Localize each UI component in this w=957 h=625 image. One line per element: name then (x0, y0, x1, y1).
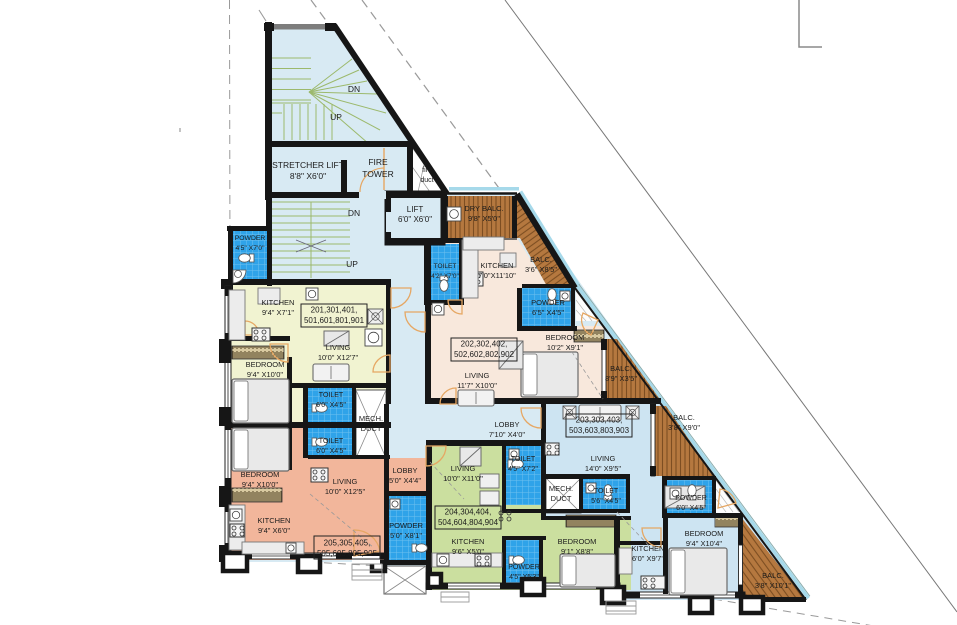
svg-text:505,605,805,905: 505,605,805,905 (317, 549, 378, 558)
svg-text:KITCHEN: KITCHEN (481, 261, 514, 270)
svg-text:POWDER: POWDER (389, 521, 423, 530)
svg-text:DUCT: DUCT (551, 494, 572, 503)
svg-text:9'6" X5'0": 9'6" X5'0" (452, 547, 484, 556)
svg-text:UP: UP (330, 112, 342, 122)
svg-text:BALC.: BALC. (673, 413, 695, 422)
svg-text:BEDROOM: BEDROOM (685, 529, 724, 538)
svg-text:4'5" X7'2": 4'5" X7'2" (508, 466, 538, 473)
svg-text:LOBBY: LOBBY (392, 466, 417, 475)
svg-text:9'1" X8'8": 9'1" X8'8" (561, 547, 593, 556)
svg-text:11'7" X10'0": 11'7" X10'0" (457, 381, 497, 390)
svg-text:9'4" X10'0": 9'4" X10'0" (247, 370, 283, 379)
svg-text:UP: UP (346, 259, 358, 269)
svg-text:6'0" X4'5": 6'0" X4'5" (676, 505, 706, 512)
svg-text:POWDER: POWDER (235, 235, 266, 242)
svg-text:10'2" X9'1": 10'2" X9'1" (547, 343, 583, 352)
svg-text:6'5" X4'5": 6'5" X4'5" (532, 308, 564, 317)
svg-text:BEDROOM: BEDROOM (246, 360, 285, 369)
svg-text:fire: fire (422, 167, 432, 174)
svg-text:205,305,405,: 205,305,405, (324, 539, 371, 548)
svg-text:9'4" X6'0": 9'4" X6'0" (258, 526, 290, 535)
svg-text:502,602,802,902: 502,602,802,902 (454, 350, 515, 359)
svg-text:DUCT: DUCT (361, 424, 382, 433)
svg-text:4'5" X5'3": 4'5" X5'3" (509, 574, 539, 581)
svg-text:203,303,403,: 203,303,403, (576, 416, 623, 425)
svg-text:10'0" X11'0": 10'0" X11'0" (443, 474, 483, 483)
svg-text:BEDROOM: BEDROOM (558, 537, 597, 546)
svg-text:201,301,401,: 201,301,401, (311, 306, 358, 315)
svg-text:6'0" X4'5": 6'0" X4'5" (316, 448, 346, 455)
svg-text:9'8" X5'0": 9'8" X5'0" (468, 214, 500, 223)
svg-text:MECH.: MECH. (549, 484, 573, 493)
svg-text:3'8" X10'1": 3'8" X10'1" (755, 581, 791, 590)
svg-text:4'5" X7'0": 4'5" X7'0" (236, 245, 266, 252)
svg-text:LIVING: LIVING (333, 477, 358, 486)
svg-text:TOILET: TOILET (594, 488, 619, 495)
svg-text:8'8" X6'0": 8'8" X6'0" (290, 171, 326, 181)
svg-text:7'0"X11'10": 7'0"X11'10" (478, 271, 516, 280)
svg-text:3'6" X8'5": 3'6" X8'5" (525, 265, 557, 274)
svg-text:TOILET: TOILET (319, 438, 344, 445)
svg-text:BALC.: BALC. (762, 571, 784, 580)
svg-text:9'4" X7'1": 9'4" X7'1" (262, 308, 294, 317)
svg-text:LIFT: LIFT (407, 205, 424, 214)
svg-text:503,603,803,903: 503,603,803,903 (569, 426, 630, 435)
svg-text:MECH.: MECH. (359, 414, 383, 423)
svg-text:TOILET: TOILET (319, 392, 344, 399)
svg-text:LIVING: LIVING (465, 371, 490, 380)
svg-text:STRETCHER LIFT: STRETCHER LIFT (272, 160, 344, 170)
svg-text:BALC.: BALC. (610, 364, 632, 373)
svg-text:5'6" X4'5": 5'6" X4'5" (591, 498, 621, 505)
svg-text:KITCHEN: KITCHEN (452, 537, 485, 546)
svg-text:9'4" X10'0": 9'4" X10'0" (242, 480, 278, 489)
svg-text:BEDROOM: BEDROOM (241, 470, 280, 479)
svg-text:TOILET: TOILET (511, 456, 536, 463)
svg-text:KITCHEN: KITCHEN (632, 544, 665, 553)
svg-text:FIRE: FIRE (368, 157, 388, 167)
svg-text:14'0" X9'5": 14'0" X9'5" (585, 464, 621, 473)
svg-text:LIVING: LIVING (591, 454, 616, 463)
svg-text:4'2" X7'0": 4'2" X7'0" (431, 273, 459, 280)
svg-text:BALC.: BALC. (530, 255, 552, 264)
svg-text:8'9" X3'5": 8'9" X3'5" (605, 374, 637, 383)
svg-text:9'4" X10'4": 9'4" X10'4" (686, 539, 722, 548)
svg-text:KITCHEN: KITCHEN (258, 516, 291, 525)
svg-text:7'10" X4'0": 7'10" X4'0" (489, 430, 525, 439)
svg-text:POWDER: POWDER (531, 298, 565, 307)
svg-text:10'0" X12'7": 10'0" X12'7" (318, 353, 359, 362)
svg-text:DRY BALC.: DRY BALC. (464, 204, 503, 213)
svg-text:POWDER: POWDER (675, 495, 707, 502)
svg-text:LOBBY: LOBBY (494, 420, 519, 429)
svg-text:DN: DN (348, 208, 360, 218)
svg-text:504,604,804,904: 504,604,804,904 (438, 518, 499, 527)
svg-text:6'0" X9'7": 6'0" X9'7" (632, 554, 664, 563)
svg-text:LIVING: LIVING (326, 343, 351, 352)
svg-text:3'8" X9'0": 3'8" X9'0" (668, 423, 700, 432)
svg-text:5'0" X4'4": 5'0" X4'4" (389, 476, 421, 485)
svg-text:5'0" X8'1": 5'0" X8'1" (390, 531, 422, 540)
svg-text:LIVING: LIVING (451, 464, 476, 473)
svg-text:6'0" X4'5": 6'0" X4'5" (316, 402, 346, 409)
svg-text:501,601,801,901: 501,601,801,901 (304, 316, 365, 325)
svg-text:TOILET: TOILET (434, 263, 457, 270)
svg-text:POWDER: POWDER (508, 564, 540, 571)
svg-text:202,302,402,: 202,302,402, (461, 340, 508, 349)
svg-text:DN: DN (348, 84, 360, 94)
svg-text:6'0" X6'0": 6'0" X6'0" (398, 215, 432, 224)
svg-text:KITCHEN: KITCHEN (262, 298, 295, 307)
svg-text:204,304,404,: 204,304,404, (445, 508, 492, 517)
svg-text:duct: duct (420, 177, 433, 184)
svg-text:TOWER: TOWER (362, 169, 393, 179)
svg-text:10'0" X12'5": 10'0" X12'5" (325, 487, 366, 496)
svg-text:BEDROOM: BEDROOM (546, 333, 585, 342)
